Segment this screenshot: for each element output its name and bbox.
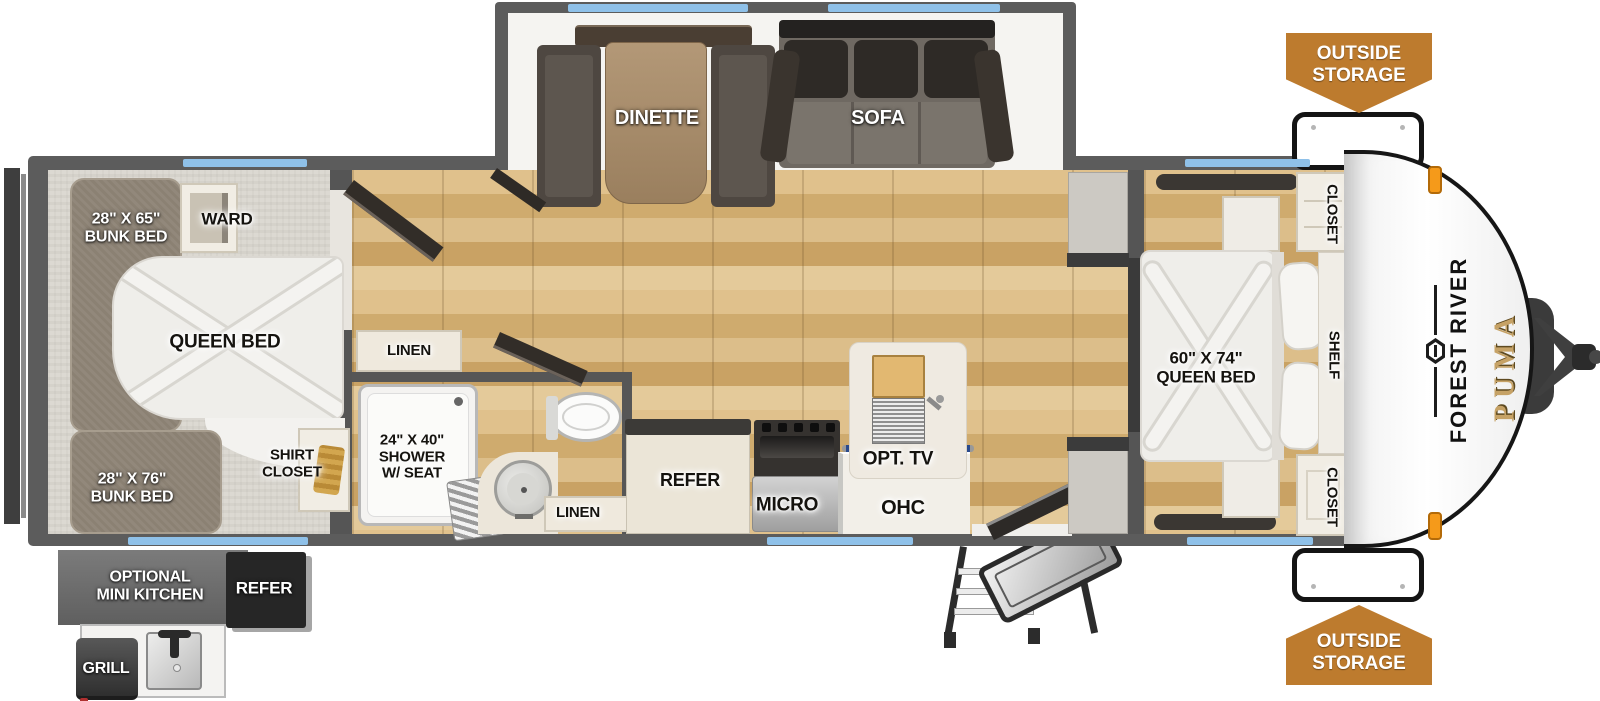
mini-kitchen-refer-label: REFER bbox=[236, 580, 293, 599]
dinette-label: DINETTE bbox=[615, 107, 699, 129]
window bbox=[568, 4, 748, 12]
screw-icon bbox=[1311, 584, 1316, 589]
rear-bumper bbox=[4, 168, 20, 524]
window bbox=[1185, 159, 1310, 167]
manufacturer-label: FOREST RIVER bbox=[1447, 257, 1471, 444]
ohc-label: OHC bbox=[881, 497, 925, 519]
shower-head-icon bbox=[454, 397, 463, 406]
outside-storage-badge-top: OUTSIDE STORAGE bbox=[1286, 33, 1432, 113]
screw-icon bbox=[1400, 125, 1405, 130]
burner-knob-icon bbox=[794, 423, 803, 432]
window bbox=[828, 4, 1000, 12]
sofa-base bbox=[779, 24, 995, 168]
mini-kitchen-label: OPTIONAL MINI KITCHEN bbox=[97, 568, 204, 603]
outside-storage-label-top: OUTSIDE STORAGE bbox=[1312, 43, 1406, 87]
faucet-icon bbox=[515, 514, 533, 519]
burner-knob-icon bbox=[826, 423, 835, 432]
dinette-bench-left bbox=[537, 45, 601, 207]
refer-label: REFER bbox=[660, 471, 720, 491]
window bbox=[767, 537, 913, 545]
linen-upper-label: LINEN bbox=[387, 343, 431, 360]
cutting-board bbox=[872, 355, 925, 398]
bunkroom-queen-label: QUEEN BED bbox=[169, 333, 280, 354]
toilet-tank bbox=[546, 396, 558, 440]
outdoor-sink bbox=[146, 632, 202, 690]
kitchen-faucet-icon bbox=[936, 395, 944, 403]
bedroom-queen-label: 60" X 74" QUEEN BED bbox=[1156, 349, 1255, 386]
window bbox=[1187, 537, 1313, 545]
burner-knob-icon bbox=[810, 423, 819, 432]
screw-icon bbox=[1400, 584, 1405, 589]
linen-lower-label: LINEN bbox=[556, 505, 600, 522]
burner-knob-icon bbox=[778, 423, 787, 432]
outside-storage-compartment-bottom bbox=[1292, 548, 1424, 602]
shelf-label: SHELF bbox=[1325, 331, 1342, 379]
kitchen-sink-cover bbox=[872, 398, 925, 444]
bedroom-wardrobe-top bbox=[1068, 172, 1128, 266]
bunk-bottom-label: 28" X 76" BUNK BED bbox=[91, 470, 174, 505]
step-foot bbox=[944, 632, 956, 648]
hitch-ball bbox=[1589, 350, 1600, 364]
sofa-back-cushion bbox=[854, 40, 918, 98]
stove bbox=[754, 420, 840, 478]
bedroom-bench-top bbox=[1156, 174, 1298, 190]
nightstand-bottom bbox=[1222, 458, 1280, 518]
burner-knob-icon bbox=[762, 423, 771, 432]
floorplan-canvas: OUTSIDE STORAGE OUTSIDE STORAGE bbox=[0, 0, 1600, 701]
shirt-closet-label: SHIRT CLOSET bbox=[262, 448, 322, 481]
drain-icon bbox=[521, 487, 527, 493]
entry-steps bbox=[925, 544, 1135, 698]
outside-storage-badge-bottom: OUTSIDE STORAGE bbox=[1286, 605, 1432, 685]
rear-trim bbox=[21, 174, 26, 518]
bunk-top-label: 28" X 65" BUNK BED bbox=[85, 210, 168, 245]
ward-label: WARD bbox=[201, 211, 252, 230]
outdoor-faucet-icon bbox=[158, 630, 191, 638]
closet-lower-label: CLOSET bbox=[1323, 467, 1340, 527]
step-foot bbox=[1028, 628, 1040, 644]
nightstand-top bbox=[1222, 196, 1280, 252]
logo-dash bbox=[1434, 285, 1437, 335]
marker-light-icon bbox=[1428, 512, 1442, 540]
toilet bbox=[550, 392, 622, 442]
outside-storage-label-bottom: OUTSIDE STORAGE bbox=[1312, 631, 1406, 675]
bedroom-wardrobe-bottom bbox=[1068, 438, 1128, 534]
window bbox=[183, 159, 307, 167]
screw-icon bbox=[1311, 125, 1316, 130]
sofa-label: SOFA bbox=[851, 107, 905, 129]
model-label: PUMA bbox=[1491, 310, 1522, 422]
marker-light-icon bbox=[1428, 166, 1442, 194]
opt-tv-label: OPT. TV bbox=[863, 450, 933, 471]
logo-dash bbox=[1434, 367, 1437, 417]
closet-upper-label: CLOSET bbox=[1323, 184, 1340, 244]
micro-label: MICRO bbox=[756, 496, 818, 517]
bathroom-wall-top bbox=[352, 372, 632, 382]
grill-label: GRILL bbox=[83, 660, 130, 678]
shower-label: 24" X 40" SHOWER W/ SEAT bbox=[379, 432, 445, 482]
window bbox=[128, 537, 308, 545]
